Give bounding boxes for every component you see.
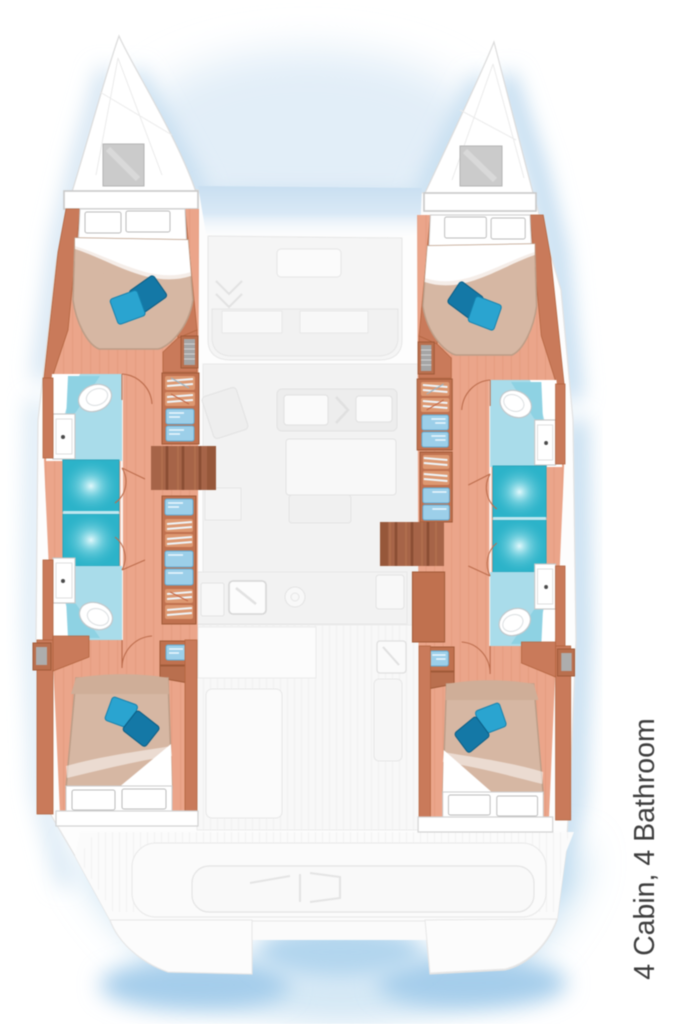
svg-text:4 Cabin, 4 Bathroom: 4 Cabin, 4 Bathroom [629,718,661,979]
